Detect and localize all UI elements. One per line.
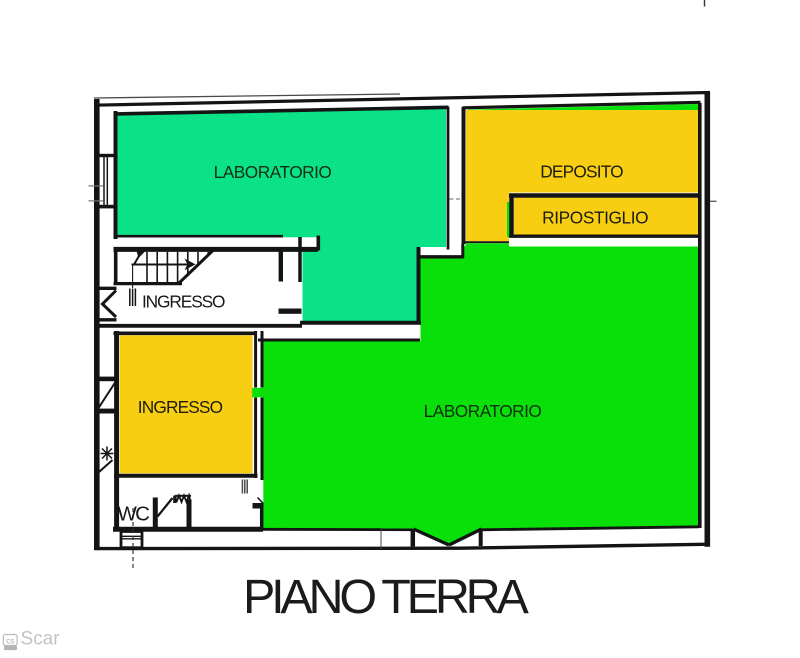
svg-text:Scar: Scar xyxy=(21,629,61,650)
svg-text:INGRESSO: INGRESSO xyxy=(138,397,223,417)
svg-text:LABORATORIO: LABORATORIO xyxy=(424,401,542,421)
svg-text:WC: WC xyxy=(118,503,151,526)
svg-text:PIANO TERRA: PIANO TERRA xyxy=(243,570,530,624)
svg-text:RIPOSTIGLIO: RIPOSTIGLIO xyxy=(542,208,648,228)
svg-text:INGRESSO: INGRESSO xyxy=(142,291,225,311)
svg-text:LABORATORIO: LABORATORIO xyxy=(214,162,332,182)
svg-text:cs: cs xyxy=(6,637,14,646)
svg-text:DEPOSITO: DEPOSITO xyxy=(540,162,623,182)
